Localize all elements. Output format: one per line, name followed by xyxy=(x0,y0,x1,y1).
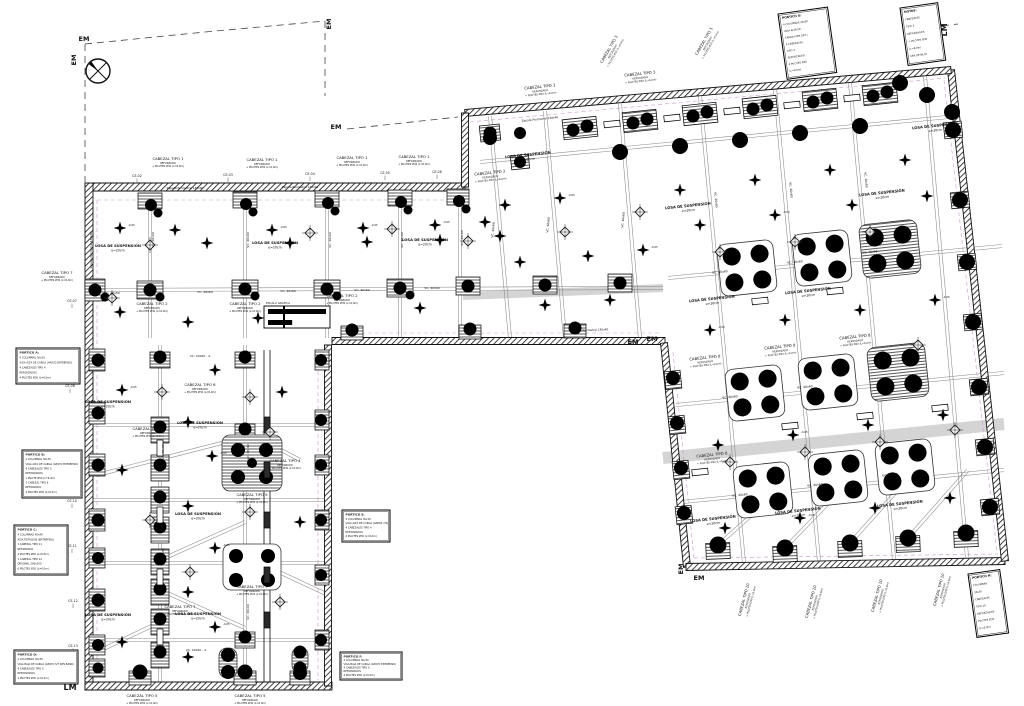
cabezal-label: CABEZAL TIPO 3REFORZADO+ PILOTES Ø30 (L=… xyxy=(694,26,720,60)
pile xyxy=(567,124,580,137)
pile xyxy=(965,314,981,330)
note-box: NOTAS:CABEZALESTIPO 3REFORZADOS+ PILOTES… xyxy=(900,3,946,66)
pile xyxy=(154,209,163,218)
pile xyxy=(971,379,987,395)
losa-label-sub: e=20cm xyxy=(801,293,815,298)
cabezal-label: CABEZAL TIPO 9REFORZADO+ PILOTES Ø30 (L=… xyxy=(236,492,268,504)
pile xyxy=(315,514,327,526)
column-star-icon xyxy=(114,222,127,235)
column-star-icon xyxy=(637,244,650,257)
pile xyxy=(627,117,640,130)
column-star-icon xyxy=(276,386,289,399)
pile xyxy=(249,208,258,217)
cabezal-label-title: CABEZAL TIPO 7 xyxy=(236,584,268,589)
note-box-line: REFORZADOS xyxy=(26,471,44,475)
beam-label: VC. 40x60 xyxy=(161,548,165,564)
pile xyxy=(687,110,700,123)
cabezal-label: CABEZAL TIPO 2REFORZADO+ PILOTES Ø30 (L=… xyxy=(326,293,358,305)
column-star-icon xyxy=(554,192,567,205)
cabezal-label-title: CABEZAL TIPO 1 xyxy=(336,155,368,160)
cabezal-label-title: CABEZAL TIPO 1 xyxy=(152,156,184,161)
pile-cluster-cap xyxy=(797,353,858,411)
pile-cluster-cap xyxy=(716,239,777,297)
cabezal-label: CABEZAL TIPO 10REFORZADO+ PILOTES Ø30 (L… xyxy=(870,578,890,614)
column-star-icon xyxy=(266,224,279,237)
note-box-line: 4 COLUMNAS 30x30 xyxy=(18,657,44,661)
column-star-icon xyxy=(499,199,512,212)
beam-label: VC. 40x60 - A xyxy=(186,648,207,652)
foundation-plan-drawing: -0.05-0.05-0.05-0.05-0.05-0.05-0.05-0.05… xyxy=(0,0,1024,706)
beam-label: VC. 40x60 xyxy=(400,232,404,248)
cabezal-label-title: CABEZAL TIPO 9 xyxy=(236,492,268,497)
beam-label: VC. 40x60 xyxy=(863,172,869,188)
level-mark: -0.05 xyxy=(443,220,450,224)
column-star-icon xyxy=(779,314,792,327)
pile xyxy=(641,113,654,126)
note-box-line: 4 CABEZALES TIPO 5 xyxy=(344,666,370,670)
losa-label-sub: e=20cm xyxy=(681,208,695,213)
level-mark: -0.05 xyxy=(223,622,230,626)
column-star-icon xyxy=(929,294,942,307)
zapata-label: Zapata Perimetral 130x40 xyxy=(521,115,558,123)
level-mark: -0.05 xyxy=(371,223,378,227)
pile xyxy=(958,525,975,542)
grid-label: CE-12 xyxy=(68,599,77,603)
cabezal-label-title: CABEZAL TIPO 5 xyxy=(234,693,266,698)
column-star-icon xyxy=(604,294,617,307)
column-star-icon xyxy=(116,384,129,397)
scale-bar-caption: ESCALA GRAFICA xyxy=(266,301,290,305)
dashed-boundary xyxy=(347,117,458,129)
column-star-icon xyxy=(116,636,129,649)
beam-coupler xyxy=(782,422,799,430)
note-box-line: PORTICO C: xyxy=(18,528,37,532)
losa-label-sub: e=20cm xyxy=(101,617,115,621)
grid-label: CE-10 xyxy=(67,499,76,503)
diamond-marker-icon xyxy=(557,224,573,240)
pile-cluster xyxy=(858,219,921,279)
pile-cluster xyxy=(219,648,237,679)
cabezal-label: CABEZAL TIPO 1REFORZADO+ PILOTES Ø30 (L=… xyxy=(246,157,278,169)
beam-label: VC. 40x60 xyxy=(788,182,794,198)
column-star-icon xyxy=(357,222,370,235)
losa-label-title: LOSA DE SUSPENSIÓN xyxy=(175,611,221,616)
column-star-icon xyxy=(209,364,222,377)
column-star-icon xyxy=(294,516,307,529)
pile xyxy=(944,104,960,120)
note-box-line: VIGA BAJA DE CARGA (APOYO S/T WIN BAND) xyxy=(18,662,74,666)
pile-cluster-cap xyxy=(807,449,868,507)
dashed-boundary xyxy=(205,21,325,32)
pile xyxy=(677,506,691,520)
pile xyxy=(145,199,157,211)
losa-label-sub: e=20cm xyxy=(101,404,115,408)
losa-label-sub: e=20cm xyxy=(875,195,889,200)
cabezal-label: CABEZAL TIPO 5REFORZADO+ PILOTES Ø30 (L=… xyxy=(126,693,158,705)
column-star-icon xyxy=(539,299,552,312)
losa-label: LOSA DE SUSPENSIÓNe=20cm xyxy=(665,201,712,215)
losa-label: LOSA DE SUSPENSIÓNe=20cm xyxy=(175,511,221,520)
pile xyxy=(261,549,275,563)
cabezal-label: CABEZAL TIPO 2REFORZADO+ PILOTES Ø30 (L=… xyxy=(136,301,168,313)
losa-label: LOSA DE SUSPENSIÓNe=20cm xyxy=(175,611,221,620)
note-box-line: REFORZADOS xyxy=(346,530,364,534)
pile xyxy=(92,514,105,527)
cabezal-label: CABEZAL TIPO 5REFORZADO+ PILOTES Ø30 (L=… xyxy=(234,693,266,705)
note-box-line: PORTICO E: xyxy=(346,513,365,517)
pile xyxy=(462,280,475,293)
losa-label-sub: e=20cm xyxy=(191,616,205,620)
column-star-icon xyxy=(514,256,527,269)
losa-label: LOSA DE SUSPENSIÓNe=20cm xyxy=(690,514,737,528)
losa-label-sub: e=20cm xyxy=(705,301,719,306)
pile xyxy=(144,284,157,297)
cabezal-label: CABEZAL TIPO 7REFORZADO+ PILOTES Ø30 (L=… xyxy=(41,270,73,282)
grid-label: CE-04 xyxy=(305,172,314,176)
note-box-line: REFORZADOS xyxy=(344,669,362,673)
scale-bar xyxy=(268,309,326,314)
pile xyxy=(919,87,935,103)
losa-label-sub: e=20cm xyxy=(191,516,205,520)
level-mark: -0.05 xyxy=(223,543,230,547)
note-box-line: ORIGINAL 200x200 xyxy=(18,562,42,566)
note-box-line: 4 CABEZALES TIPO 5 xyxy=(26,467,52,471)
note-box-line: ALTA ROTACION (ENTREPISO) xyxy=(18,537,54,541)
pile xyxy=(747,103,760,116)
column-star-icon xyxy=(674,184,687,197)
diamond-marker-icon xyxy=(272,594,288,610)
note-box-line: VIGA BAJA DE CARGA (APOYO ENTREPISO) xyxy=(344,662,397,666)
note-box-line: REFORZADOS xyxy=(18,671,36,675)
column-star-icon xyxy=(206,450,219,463)
level-mark: -0.05 xyxy=(568,193,575,197)
cabezal-label: CABEZAL TIPO 8REFORZADO+ PILOTES Ø30 (L=… xyxy=(764,342,797,357)
pile xyxy=(732,132,748,148)
note-box-line: 1 CABEZAL TIPO 6 xyxy=(26,481,49,485)
cabezal-label: CABEZAL TIPO 2REFORZADO+ PILOTES Ø30 (L=… xyxy=(229,301,261,313)
cabezal-label: CABEZAL TIPO 3REFORZADO+ PILOTES Ø30 (L=… xyxy=(524,82,557,97)
grid-label: CE-07 xyxy=(67,299,76,303)
beam-label: VC. 40x60 xyxy=(713,192,719,208)
pile xyxy=(92,552,104,564)
pile xyxy=(670,416,684,430)
em-label: EM xyxy=(79,35,90,43)
beam-label: VC. 40x60 xyxy=(490,222,496,238)
beam-coupler xyxy=(752,297,769,305)
cabezal-label: CABEZAL TIPO 1REFORZADO+ PILOTES Ø30 (L=… xyxy=(152,156,184,168)
pile xyxy=(239,631,252,644)
note-box-line: PORTICO F: xyxy=(344,655,363,659)
note-box-line: REFORZADO xyxy=(26,485,42,489)
column-star-icon xyxy=(116,464,129,477)
level-mark: -0.05 xyxy=(280,225,287,229)
pile xyxy=(539,279,552,292)
pile xyxy=(666,371,680,385)
pile xyxy=(154,491,167,504)
column-star-icon xyxy=(361,236,374,249)
pile xyxy=(792,125,808,141)
cabezal-label-title: CABEZAL TIPO 5 xyxy=(126,693,158,698)
pile xyxy=(761,99,774,112)
zapata-label: Zapata Perimetral 130x40 xyxy=(282,185,319,189)
grid-label: CE-02 xyxy=(132,174,141,178)
column-star-icon xyxy=(209,621,222,634)
beam-coupler xyxy=(157,629,163,645)
losa-label-title: LOSA DE SUSPENSIÓN xyxy=(252,240,298,245)
pile xyxy=(842,535,859,552)
column-star-icon xyxy=(414,302,427,315)
pile xyxy=(514,127,526,139)
grid-label: CE-03 xyxy=(223,173,232,177)
cabezal-label-title: CABEZAL TIPO 6 xyxy=(184,382,216,387)
losa-label-sub: e=20cm xyxy=(193,425,207,429)
beam-label: VC. 40x60 xyxy=(151,232,155,248)
cabezal-label-title: CABEZAL TIPO 7 xyxy=(164,604,196,609)
note-box: PORTICO D:4 COLUMNAS 30x30VIGA BAJA DE C… xyxy=(14,650,78,684)
pile-cluster-cap xyxy=(724,364,785,422)
scale-bar xyxy=(268,320,292,325)
beam-coupler xyxy=(264,612,270,628)
beam-label: VC. 40x60 xyxy=(620,212,626,228)
pile-cluster xyxy=(807,449,868,507)
note-box-line: 4 COLUMNAS 30x30 xyxy=(26,457,52,461)
pile xyxy=(92,594,105,607)
wall-segment xyxy=(686,558,1005,571)
level-mark: -0.05 xyxy=(128,223,135,227)
level-mark: -0.05 xyxy=(808,513,815,517)
pile xyxy=(900,530,917,547)
losa-label-sub: e=20cm xyxy=(268,245,282,249)
pile xyxy=(612,144,628,160)
em-label: EM xyxy=(628,338,639,346)
beam-label: VC. 40x60 xyxy=(280,289,296,293)
cabezal-label: CABEZAL TIPO 3REFORZADO+ PILOTES Ø30 (L=… xyxy=(599,34,625,68)
diamond-marker-icon xyxy=(302,225,318,241)
pile-cluster xyxy=(716,239,777,297)
pile xyxy=(251,292,260,301)
column-star-icon xyxy=(201,237,214,250)
wall-segment xyxy=(462,113,469,187)
column-star-icon xyxy=(694,219,707,232)
cabezal-label: CABEZAL TIPO 8REFORZADO+ PILOTES Ø30 (L=… xyxy=(689,353,722,368)
beam-label: VC. 40x60 xyxy=(424,286,440,290)
drawing-sheet: -0.05-0.05-0.05-0.05-0.05-0.05-0.05-0.05… xyxy=(0,0,1024,706)
diamond-marker-icon xyxy=(384,221,400,237)
note-box-line: 4 COLUMNAS 30x30 xyxy=(344,658,370,662)
wall-segment xyxy=(332,338,665,345)
pile xyxy=(221,648,235,662)
diamond-marker-icon xyxy=(142,237,158,253)
beams-layer xyxy=(93,76,1004,682)
pile xyxy=(154,646,167,659)
cabezal-label: CABEZAL TIPO 1REFORZADO+ PILOTES Ø30 (L=… xyxy=(398,154,430,166)
pile xyxy=(867,90,880,103)
losa-label-sub: e=20cm xyxy=(893,506,907,511)
em-label: EM xyxy=(70,55,78,66)
column-star-icon xyxy=(114,306,127,319)
cabezal-label: CABEZAL TIPO 10REFORZADO+ PILOTES Ø30 (L… xyxy=(804,584,824,620)
grid-label: CE-06 xyxy=(432,170,441,174)
column-star-icon xyxy=(182,316,195,329)
cabezal-label-title: CABEZAL TIPO 2 xyxy=(136,301,168,306)
beam-coupler xyxy=(604,120,621,128)
pile xyxy=(231,470,245,484)
column-star-icon xyxy=(582,250,595,263)
pile xyxy=(315,634,327,646)
losa-label-sub: e=20cm xyxy=(706,521,720,526)
losa-label-sub: e=20cm xyxy=(111,248,125,252)
pile xyxy=(221,665,235,679)
pile xyxy=(710,537,727,554)
cabezal-label-title: CABEZAL TIPO 1 xyxy=(398,154,430,159)
level-mark: -0.05 xyxy=(718,325,725,329)
losa-label-title: LOSA DE SUSPENSIÓN xyxy=(95,243,141,248)
pile xyxy=(315,354,327,366)
note-box: PORTICO C:4 COLUMNAS 40x40ALTA ROTACION … xyxy=(14,525,68,575)
grid-label: CE-08 xyxy=(65,384,74,388)
pile xyxy=(821,92,834,105)
note-box: PORTICO F:4 COLUMNAS 30x30VIGA BAJA DE C… xyxy=(340,652,402,680)
note-box-line: PORTICO B: xyxy=(26,453,45,457)
pile xyxy=(852,118,868,134)
beam-coupler xyxy=(264,567,270,583)
cabezal-label-title: CABEZAL TIPO 1 xyxy=(246,157,278,162)
zapata-label: Zapata Perimetral 130x40 xyxy=(572,327,609,332)
pile xyxy=(406,291,415,300)
beam-coupler xyxy=(664,114,681,122)
grid-label: CE-05 xyxy=(380,171,389,175)
pile xyxy=(892,75,908,91)
losa-label-sub: e=20cm xyxy=(928,128,942,133)
column-star-icon xyxy=(769,209,782,222)
level-mark: -0.05 xyxy=(783,210,790,214)
note-box-line: 4 COLUMNAS 30x30 xyxy=(20,356,46,360)
column-star-icon xyxy=(921,190,934,203)
em-label: EM xyxy=(325,19,333,30)
pile-cluster-cap xyxy=(866,342,929,402)
note-box-line: PORTICO A: xyxy=(20,351,39,355)
pile xyxy=(462,205,471,214)
pile xyxy=(229,549,243,563)
north-arrow-icon xyxy=(86,59,110,83)
cabezal-label: CABEZAL TIPO 3REFORZADO+ PILOTES Ø30 (L=… xyxy=(624,69,657,84)
pile xyxy=(614,277,627,290)
pile xyxy=(464,323,477,336)
pile-cluster xyxy=(874,438,935,496)
column-star-icon xyxy=(209,542,222,555)
diamond-marker-icon xyxy=(242,389,258,405)
note-box-line: VIGA ALTA DE CARGA (APOYO ENTREPISO) xyxy=(26,462,79,466)
note-box-line: REFORZADO xyxy=(18,547,34,551)
pile xyxy=(952,192,968,208)
cabezal-label: CABEZAL TIPO 10REFORZADO+ PILOTES Ø30 (L… xyxy=(932,572,952,608)
losa-label: LOSA DE SUSPENSIÓNe=20cm xyxy=(177,420,223,429)
grid-label: CE-11 xyxy=(67,544,76,548)
note-box-line: 1 CABEZAL TIPO 11 xyxy=(18,542,43,546)
pile xyxy=(92,639,104,651)
pile xyxy=(92,407,105,420)
pile xyxy=(322,197,334,209)
losa-label-title: LOSA DE SUSPENSIÓN xyxy=(177,420,223,425)
pile xyxy=(231,443,245,457)
em-label: EM xyxy=(694,574,705,582)
pile xyxy=(346,324,359,337)
note-box: PORTICO E:4 COLUMNAS 30x30VIGA ALTA DE C… xyxy=(342,510,390,542)
cabezal-label: CABEZAL TIPO 2REFORZADO+ PILOTES Ø30 (L=… xyxy=(474,168,507,183)
cabezal-label-title: CABEZAL TIPO 2 xyxy=(229,301,261,306)
beam-label: VC. 40x60 xyxy=(545,217,551,233)
note-box-line: REFORZADOS xyxy=(20,371,38,375)
diamond-marker-icon xyxy=(182,564,198,580)
pile xyxy=(92,354,105,367)
column-star-icon xyxy=(862,419,875,432)
level-mark: -0.05 xyxy=(801,430,808,434)
beam-coupler xyxy=(157,507,163,523)
pile xyxy=(239,283,252,296)
pile xyxy=(701,106,714,119)
cabezal-label: CABEZAL TIPO 10REFORZADO+ PILOTES Ø30 (L… xyxy=(737,582,757,618)
losa-label-sub: e=20cm xyxy=(521,157,535,162)
pile xyxy=(807,96,820,109)
beam-coupler xyxy=(692,468,709,476)
scale-bar: ESCALA GRAFICA xyxy=(264,301,330,328)
beam-label: VC. 40x60 xyxy=(246,232,250,248)
note-box-line: 1 CABEZAL TIPO 12 xyxy=(18,557,43,561)
column-star-icon xyxy=(182,586,195,599)
beam-label: VC. 40x60 xyxy=(161,444,165,460)
pile xyxy=(93,663,104,674)
pile xyxy=(92,459,105,472)
beam-coupler xyxy=(264,512,270,528)
beam-coupler xyxy=(784,101,801,109)
diamond-marker-icon xyxy=(154,384,170,400)
pile xyxy=(259,443,273,457)
note-box-line: 4 COLUMNAS 40x40 xyxy=(18,532,44,536)
column-star-icon xyxy=(846,199,859,212)
beam-coupler xyxy=(857,412,874,420)
pile xyxy=(294,646,307,659)
beam-coupler xyxy=(932,404,949,412)
pile-cluster-cap xyxy=(874,438,935,496)
pile xyxy=(395,196,407,208)
beam-coupler xyxy=(264,462,270,478)
beam-label: VC. 40x60 xyxy=(328,232,332,248)
pile xyxy=(674,461,688,475)
losa-label: LOSA DE SUSPENSIÓNe=20cm xyxy=(95,243,141,252)
losa-label-sub: e=20cm xyxy=(418,242,432,246)
beam-label: VC. 40x60 xyxy=(246,604,250,620)
level-mark: -0.05 xyxy=(220,451,227,455)
column-star-icon xyxy=(899,154,912,167)
pile xyxy=(315,414,327,426)
zapata-label: Zapata Perimetral 130x40 xyxy=(167,186,204,190)
pile xyxy=(239,351,252,364)
column-star-icon xyxy=(749,174,762,187)
cabezal-label-title: CABEZAL TIPO 4 xyxy=(269,458,301,463)
level-mark: -0.05 xyxy=(130,385,137,389)
column-star-icon xyxy=(854,304,867,317)
column-star-icon xyxy=(252,312,265,325)
level-mark: -0.05 xyxy=(651,245,658,249)
pile-cluster xyxy=(797,353,858,411)
pile xyxy=(959,254,975,270)
note-box: PORTICO B:4 COLUMNAS 30x30VIGA ALTA DE C… xyxy=(22,450,82,498)
column-star-icon xyxy=(494,230,507,243)
dashed-boundary xyxy=(85,32,205,44)
pile xyxy=(239,423,252,436)
beam-label: VC. 40x60 xyxy=(460,230,464,246)
cabezal-label-title: CABEZAL TIPO 7 xyxy=(41,270,73,275)
